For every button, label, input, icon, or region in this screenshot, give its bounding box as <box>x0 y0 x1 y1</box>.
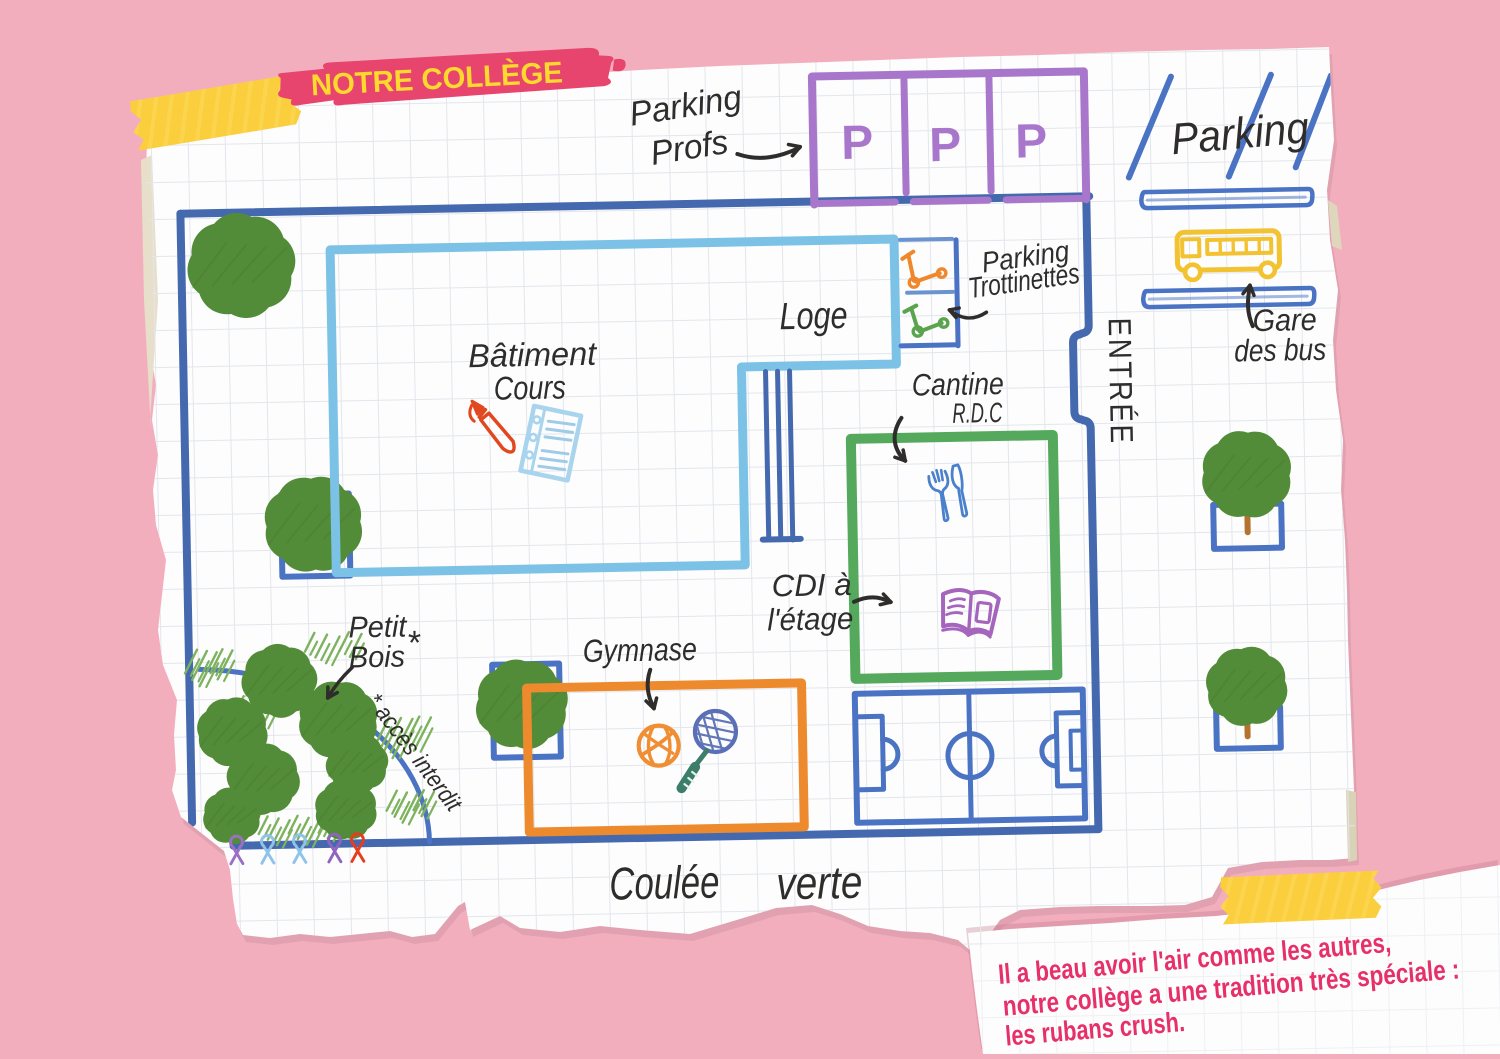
svg-text:*: * <box>408 624 422 662</box>
svg-text:Coulée: Coulée <box>609 855 720 909</box>
svg-text:Petit: Petit <box>348 610 408 644</box>
svg-text:des bus: des bus <box>1234 332 1327 369</box>
svg-text:R.D.C: R.D.C <box>952 397 1003 429</box>
svg-text:l'étage: l'étage <box>767 601 854 638</box>
svg-text:P: P <box>841 116 874 170</box>
svg-text:P: P <box>929 119 962 173</box>
svg-text:P: P <box>1015 115 1048 169</box>
svg-text:Cours: Cours <box>493 368 566 406</box>
svg-text:Gymnase: Gymnase <box>583 631 698 669</box>
svg-text:ENTRÉE: ENTRÉE <box>1102 317 1140 446</box>
svg-text:Bois: Bois <box>349 640 406 674</box>
svg-text:verte: verte <box>776 856 863 910</box>
svg-text:CDI à: CDI à <box>771 567 852 604</box>
svg-text:Loge: Loge <box>779 295 848 338</box>
